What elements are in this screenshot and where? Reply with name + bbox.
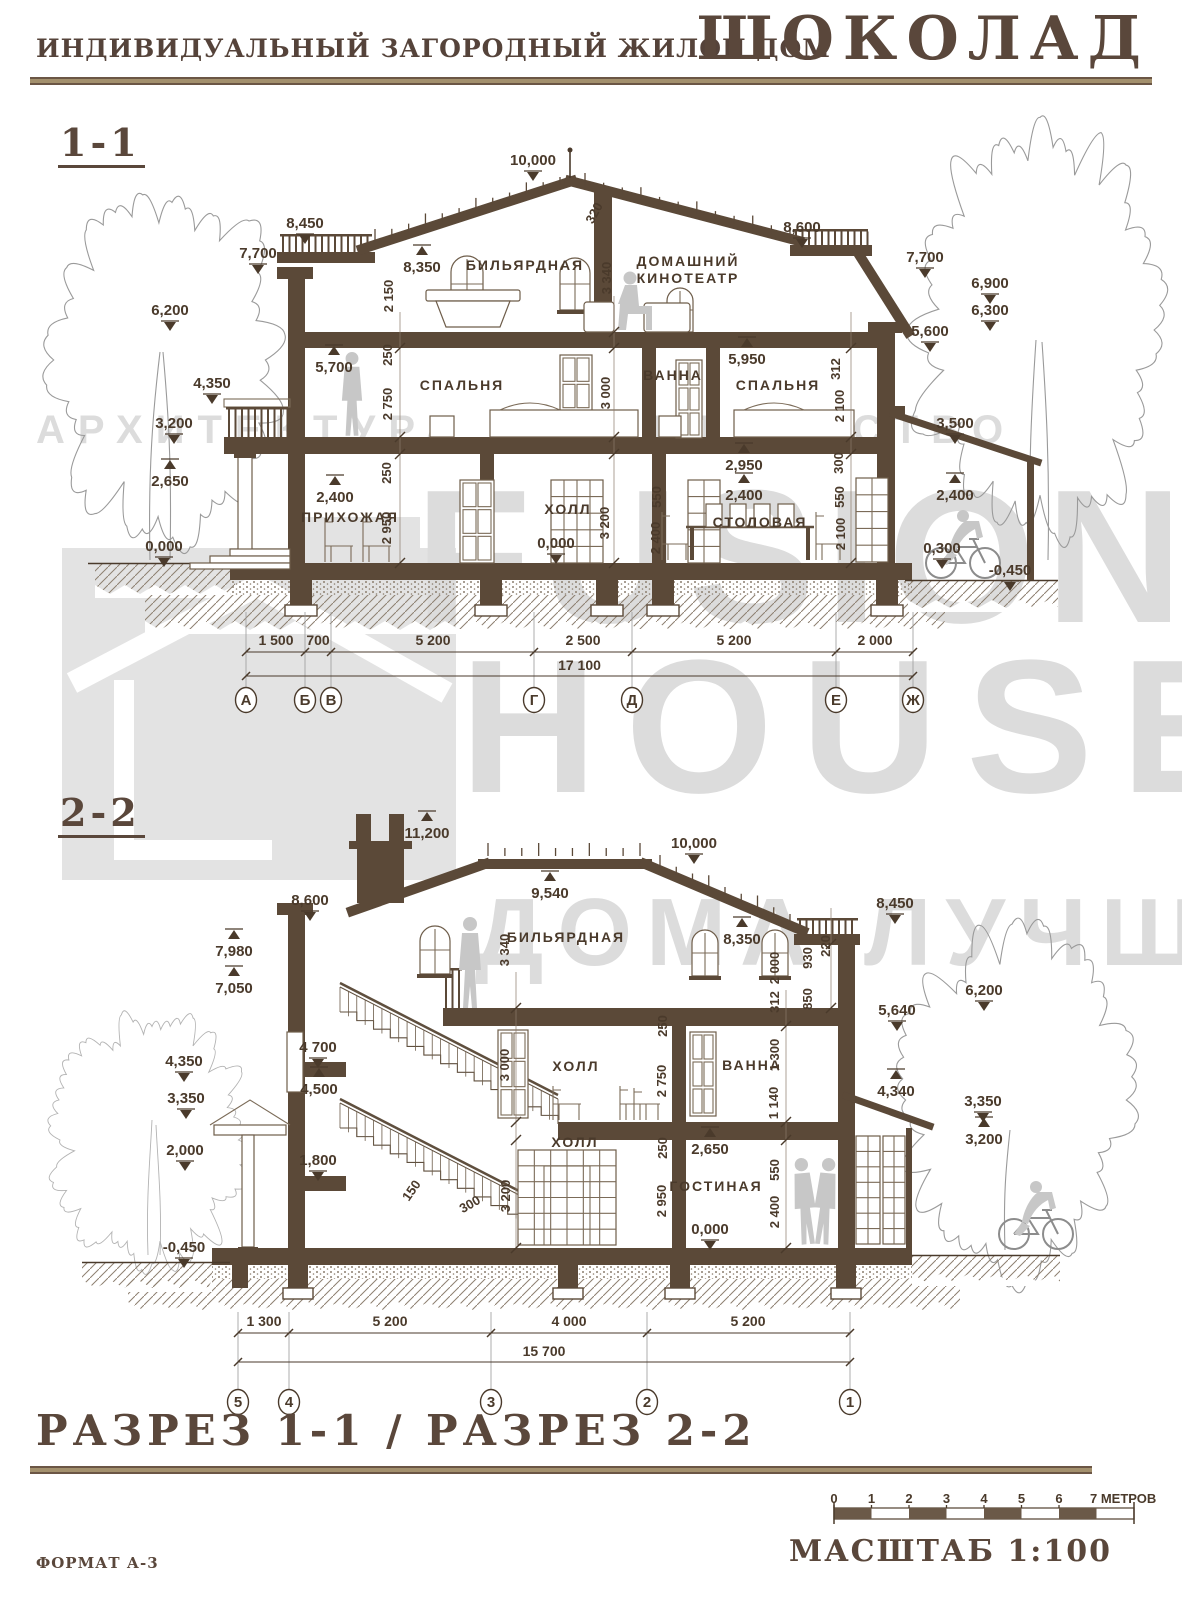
chain-dimension: 1 140 xyxy=(766,1087,781,1120)
level-mark: 5,600 xyxy=(911,323,949,340)
scale-tick-label: 5 xyxy=(1018,1491,1025,1506)
level-mark-symbol xyxy=(527,172,539,181)
scale-unit-label: 7 МЕТРОВ xyxy=(1090,1491,1156,1506)
level-mark: 0,000 xyxy=(145,538,183,555)
scale-label: МАСШТАБ 1:100 xyxy=(789,1534,1112,1569)
level-mark: 3,500 xyxy=(936,415,974,432)
axis-label: Д xyxy=(627,692,638,709)
scale-tick-label: 2 xyxy=(905,1491,912,1506)
chain-dimension: 2 100 xyxy=(833,518,848,551)
room-label: ГОСТИНАЯ xyxy=(669,1178,762,1194)
dimension-value: 5 200 xyxy=(716,632,751,648)
level-mark: 6,200 xyxy=(965,982,1003,999)
level-mark-symbol xyxy=(180,1110,192,1119)
level-mark: -0,450 xyxy=(163,1239,206,1256)
level-mark-symbol xyxy=(179,1162,191,1171)
section-2-2-label: 2-2 xyxy=(58,790,145,838)
level-mark-symbol xyxy=(949,474,961,483)
level-mark: 3,350 xyxy=(167,1090,205,1107)
room-label: ХОЛЛ xyxy=(544,501,591,517)
scale-tick-label: 3 xyxy=(943,1491,950,1506)
room-label: КИНОТЕАТР xyxy=(637,270,740,286)
scale-tick-label: 4 xyxy=(980,1491,988,1506)
level-mark: 4,500 xyxy=(300,1081,338,1098)
level-mark: 2,400 xyxy=(725,487,763,504)
level-mark: 4,350 xyxy=(165,1053,203,1070)
chain-dimension: 2 750 xyxy=(380,388,395,421)
dimension-value: 5 200 xyxy=(415,632,450,648)
dimension-row-2: 1 3005 2004 0005 200 xyxy=(234,1313,854,1337)
ground xyxy=(88,563,1058,634)
dimension-value: 700 xyxy=(306,632,330,648)
chain-dimension: 150 xyxy=(399,1177,424,1203)
room-label: СПАЛЬНЯ xyxy=(420,377,505,393)
couple-silhouette xyxy=(790,1157,839,1245)
chain-dimension: 220 xyxy=(818,935,833,957)
level-mark-symbol xyxy=(416,246,428,255)
level-mark-symbol xyxy=(329,476,341,485)
level-mark-symbol xyxy=(919,269,931,278)
level-mark: 0,300 xyxy=(923,540,961,557)
level-mark: 2,650 xyxy=(151,473,189,490)
chain-dimension: 300 xyxy=(831,452,846,474)
room-label: БИЛЬЯРДНАЯ xyxy=(507,929,625,945)
chain-dimension: 2 950 xyxy=(379,512,394,545)
chain-dimension: 2 150 xyxy=(381,280,396,313)
level-mark: -0,450 xyxy=(989,562,1032,579)
scale-tick-label: 0 xyxy=(830,1491,837,1506)
level-mark: 6,300 xyxy=(971,302,1009,319)
level-mark-symbol xyxy=(304,912,316,921)
chain-dimension: 2 400 xyxy=(767,1196,782,1229)
level-mark-symbol xyxy=(889,915,901,924)
chain-dimension: 300 xyxy=(457,1192,483,1216)
level-mark: 9,540 xyxy=(531,885,569,902)
dimension-value: 1 300 xyxy=(246,1313,281,1329)
room-label: ХОЛЛ xyxy=(551,1134,598,1150)
axis-label: 1 xyxy=(846,1394,854,1411)
level-mark: 10,000 xyxy=(510,152,556,169)
room-label: БИЛЬЯРДНАЯ xyxy=(466,257,584,273)
chain-dimension: 312 xyxy=(767,991,782,1013)
dimension-value: 1 500 xyxy=(258,632,293,648)
level-mark-symbol xyxy=(890,1070,902,1079)
drawing-title: РАЗРЕЗ 1-1 / РАЗРЕЗ 2-2 xyxy=(36,1406,757,1455)
level-mark-symbol xyxy=(891,1022,903,1031)
dimension-value: 2 000 xyxy=(857,632,892,648)
level-mark-symbol xyxy=(544,872,556,881)
chain-dimension: 312 xyxy=(828,358,843,380)
level-mark-symbol xyxy=(228,930,240,939)
level-mark-symbol xyxy=(978,1118,990,1127)
level-mark: 4 700 xyxy=(299,1039,337,1056)
chain-dimension: 3 340 xyxy=(497,934,512,967)
chain-dimension: 250 xyxy=(655,1137,670,1159)
format-label: ФОРМАТ А-3 xyxy=(36,1554,159,1572)
chain-dimension: 2 750 xyxy=(654,1065,669,1098)
drawing-sheet: АРХИТЕКТУРА СТРОИТЕЛЬСТВО FUSION HOUSE Д… xyxy=(0,0,1182,1600)
chain-dimension: 850 xyxy=(800,988,815,1010)
chain-dimension: 250 xyxy=(655,1015,670,1037)
axis-label: Г xyxy=(530,692,539,709)
level-mark: 8,450 xyxy=(286,215,324,232)
total-dimension: 17 100 xyxy=(242,657,917,680)
footer-rule xyxy=(30,1466,1092,1474)
header-rule xyxy=(30,77,1152,85)
chain-dimension: 3 200 xyxy=(597,507,612,540)
level-mark-symbol xyxy=(738,474,750,483)
level-mark-symbol xyxy=(252,265,264,274)
level-mark: 2,400 xyxy=(316,489,354,506)
room-label: СТОЛОВАЯ xyxy=(713,514,808,530)
level-mark: 8,600 xyxy=(291,892,329,909)
level-mark: 8,600 xyxy=(783,219,821,236)
level-mark: 10,000 xyxy=(671,835,717,852)
chain-dimension: 3 340 xyxy=(599,262,614,295)
level-mark: 2,950 xyxy=(725,457,763,474)
dimension-value: 5 200 xyxy=(730,1313,765,1329)
level-mark: 7,980 xyxy=(215,943,253,960)
total-dimension-value: 15 700 xyxy=(523,1343,566,1359)
axis-label: В xyxy=(326,692,337,709)
chain-dimension: 550 xyxy=(649,486,664,508)
level-mark: 0,000 xyxy=(691,1221,729,1238)
ground-2 xyxy=(82,1248,1060,1314)
level-mark: 8,350 xyxy=(403,259,441,276)
level-mark: 5,950 xyxy=(728,351,766,368)
level-mark-symbol xyxy=(206,395,218,404)
level-mark: 7,700 xyxy=(906,249,944,266)
chain-dimension: 1 300 xyxy=(767,1039,782,1072)
level-mark-symbol xyxy=(178,1073,190,1082)
axis-label: А xyxy=(241,692,252,709)
level-mark-symbol xyxy=(978,1002,990,1011)
level-mark: 1,800 xyxy=(299,1152,337,1169)
chain-dimension: 550 xyxy=(767,1159,782,1181)
level-mark: 6,900 xyxy=(971,275,1009,292)
level-mark-symbol xyxy=(688,855,700,864)
section-1-1-label: 1-1 xyxy=(58,120,145,168)
sections-drawing: БИЛЬЯРДНАЯДОМАШНИЙКИНОТЕАТРСПАЛЬНЯВАННАС… xyxy=(0,0,1182,1600)
level-mark-symbol xyxy=(168,435,180,444)
scale-tick-label: 6 xyxy=(1055,1491,1062,1506)
level-mark: 2,400 xyxy=(936,487,974,504)
room-label: ВАННА xyxy=(643,367,703,383)
chain-dimension: 250 xyxy=(380,344,395,366)
dimension-value: 5 200 xyxy=(372,1313,407,1329)
level-mark: 6,200 xyxy=(151,302,189,319)
room-label: ХОЛЛ xyxy=(552,1058,599,1074)
project-logo: ШОКОЛАД xyxy=(697,4,1150,74)
chain-dimension: 550 xyxy=(832,486,847,508)
axis-label: Ж xyxy=(905,692,920,709)
section-1-1-drawing: БИЛЬЯРДНАЯДОМАШНИЙКИНОТЕАТРСПАЛЬНЯВАННАС… xyxy=(43,116,1168,713)
chain-dimension: 2 100 xyxy=(832,390,847,423)
axis-label: Б xyxy=(300,692,311,709)
section-2-2-drawing: БИЛЬЯРДНАЯХОЛЛВАННАХОЛЛГОСТИНАЯ 11,20010… xyxy=(48,811,1139,1415)
level-mark-symbol xyxy=(164,460,176,469)
level-mark-symbol xyxy=(984,322,996,331)
level-mark-symbol xyxy=(228,967,240,976)
dimension-row: 1 5007005 2002 5005 2002 000 xyxy=(242,632,917,656)
level-mark: 3,200 xyxy=(965,1131,1003,1148)
scale-bar: 0123456 7 МЕТРОВ xyxy=(830,1491,1156,1524)
dimension-value: 4 000 xyxy=(551,1313,586,1329)
chain-dimension: 3 200 xyxy=(498,1180,513,1213)
axis-bubbles-2: 54321 xyxy=(228,1312,861,1415)
person-silhouette-2 xyxy=(459,917,481,1008)
level-mark: 0,000 xyxy=(537,535,575,552)
level-mark: 4,350 xyxy=(193,375,231,392)
level-mark: 2,000 xyxy=(166,1142,204,1159)
scale-tick-label: 1 xyxy=(868,1491,875,1506)
axis-label: Е xyxy=(831,692,841,709)
cyclist-silhouette-2 xyxy=(999,1181,1073,1249)
level-mark: 7,700 xyxy=(239,245,277,262)
chain-dimension: 250 xyxy=(379,462,394,484)
level-mark: 5,700 xyxy=(315,359,353,376)
level-mark: 2,650 xyxy=(691,1141,729,1158)
level-mark: 4,340 xyxy=(877,1083,915,1100)
level-mark-symbol xyxy=(164,322,176,331)
level-mark: 7,050 xyxy=(215,980,253,997)
chain-dimension: 2 000 xyxy=(767,952,782,985)
level-mark: 11,200 xyxy=(404,825,449,842)
total-dimension-value: 17 100 xyxy=(558,657,601,673)
chain-dimension: 3 000 xyxy=(598,377,613,410)
room-label: ДОМАШНИЙ xyxy=(637,252,740,269)
level-mark-symbol xyxy=(421,812,433,821)
level-mark: 5,640 xyxy=(878,1002,916,1019)
level-mark: 8,350 xyxy=(723,931,761,948)
dimension-value: 2 500 xyxy=(565,632,600,648)
level-mark-symbol xyxy=(924,343,936,352)
tree-left-birch xyxy=(48,1011,254,1275)
chain-dimension: 930 xyxy=(800,947,815,969)
chain-dimension: 2 400 xyxy=(648,522,663,555)
room-label: СПАЛЬНЯ xyxy=(736,377,821,393)
level-mark: 3,350 xyxy=(964,1093,1002,1110)
chain-dimension: 3 000 xyxy=(497,1049,512,1082)
chain-dimension: 2 950 xyxy=(654,1185,669,1218)
level-mark: 3,200 xyxy=(155,415,193,432)
total-dimension-2: 15 700 xyxy=(234,1343,854,1366)
tree-right-2 xyxy=(897,918,1139,1293)
level-mark: 8,450 xyxy=(876,895,914,912)
level-mark-symbol xyxy=(736,918,748,927)
